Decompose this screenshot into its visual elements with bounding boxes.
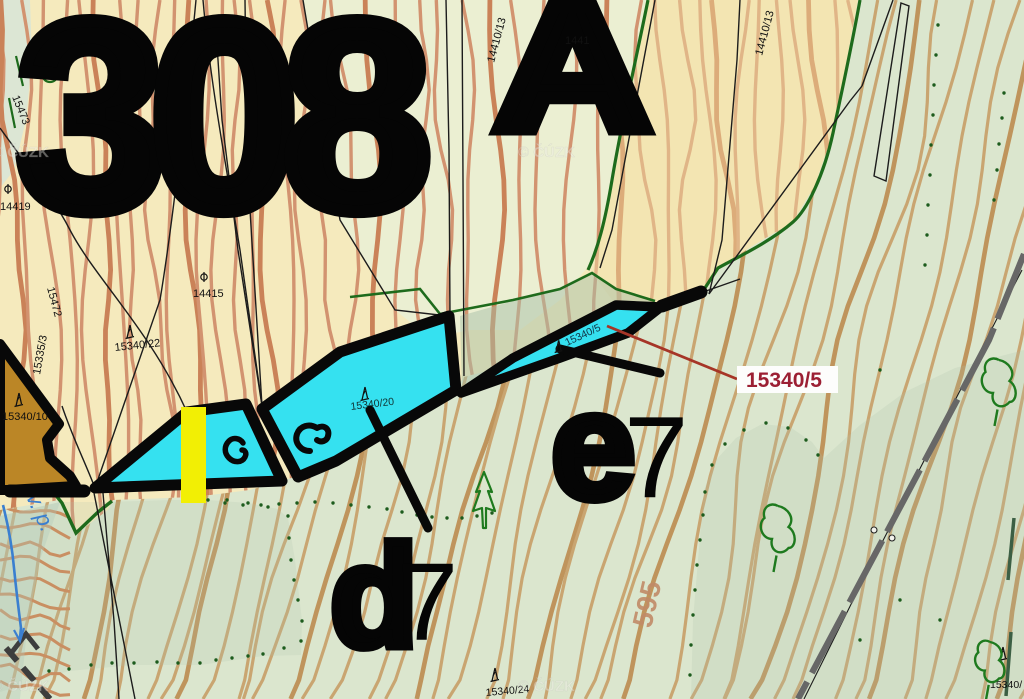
svg-text:© ČÚZK: © ČÚZK [0, 143, 49, 161]
svg-text:© ČÚZK: © ČÚZK [0, 677, 49, 695]
svg-text:e: e [551, 361, 636, 531]
svg-text:1441: 1441 [565, 35, 589, 47]
svg-text:7: 7 [397, 541, 458, 664]
svg-text:14415: 14415 [193, 288, 224, 300]
svg-text:© ČÚZK: © ČÚZK [518, 143, 575, 161]
svg-text:14419: 14419 [0, 201, 31, 213]
svg-text:15340/5: 15340/5 [746, 369, 822, 392]
svg-text:© ČÚZK: © ČÚZK [518, 677, 575, 695]
svg-text:308: 308 [16, 0, 426, 267]
svg-text:7: 7 [624, 392, 689, 522]
svg-text:A: A [494, 0, 651, 168]
svg-text:15340/10: 15340/10 [2, 411, 48, 423]
